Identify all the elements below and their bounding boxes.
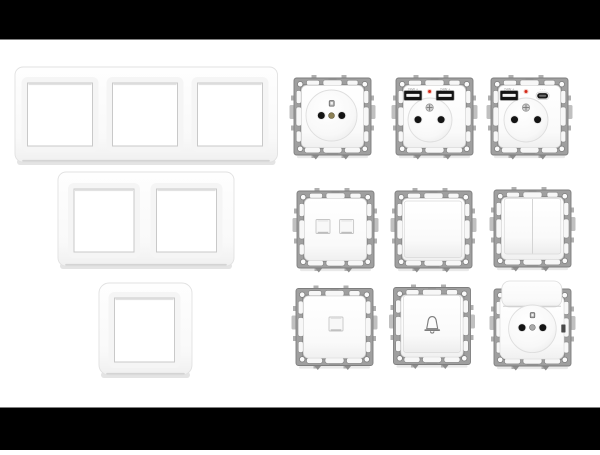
svg-text:- - -: - - - <box>540 88 546 92</box>
